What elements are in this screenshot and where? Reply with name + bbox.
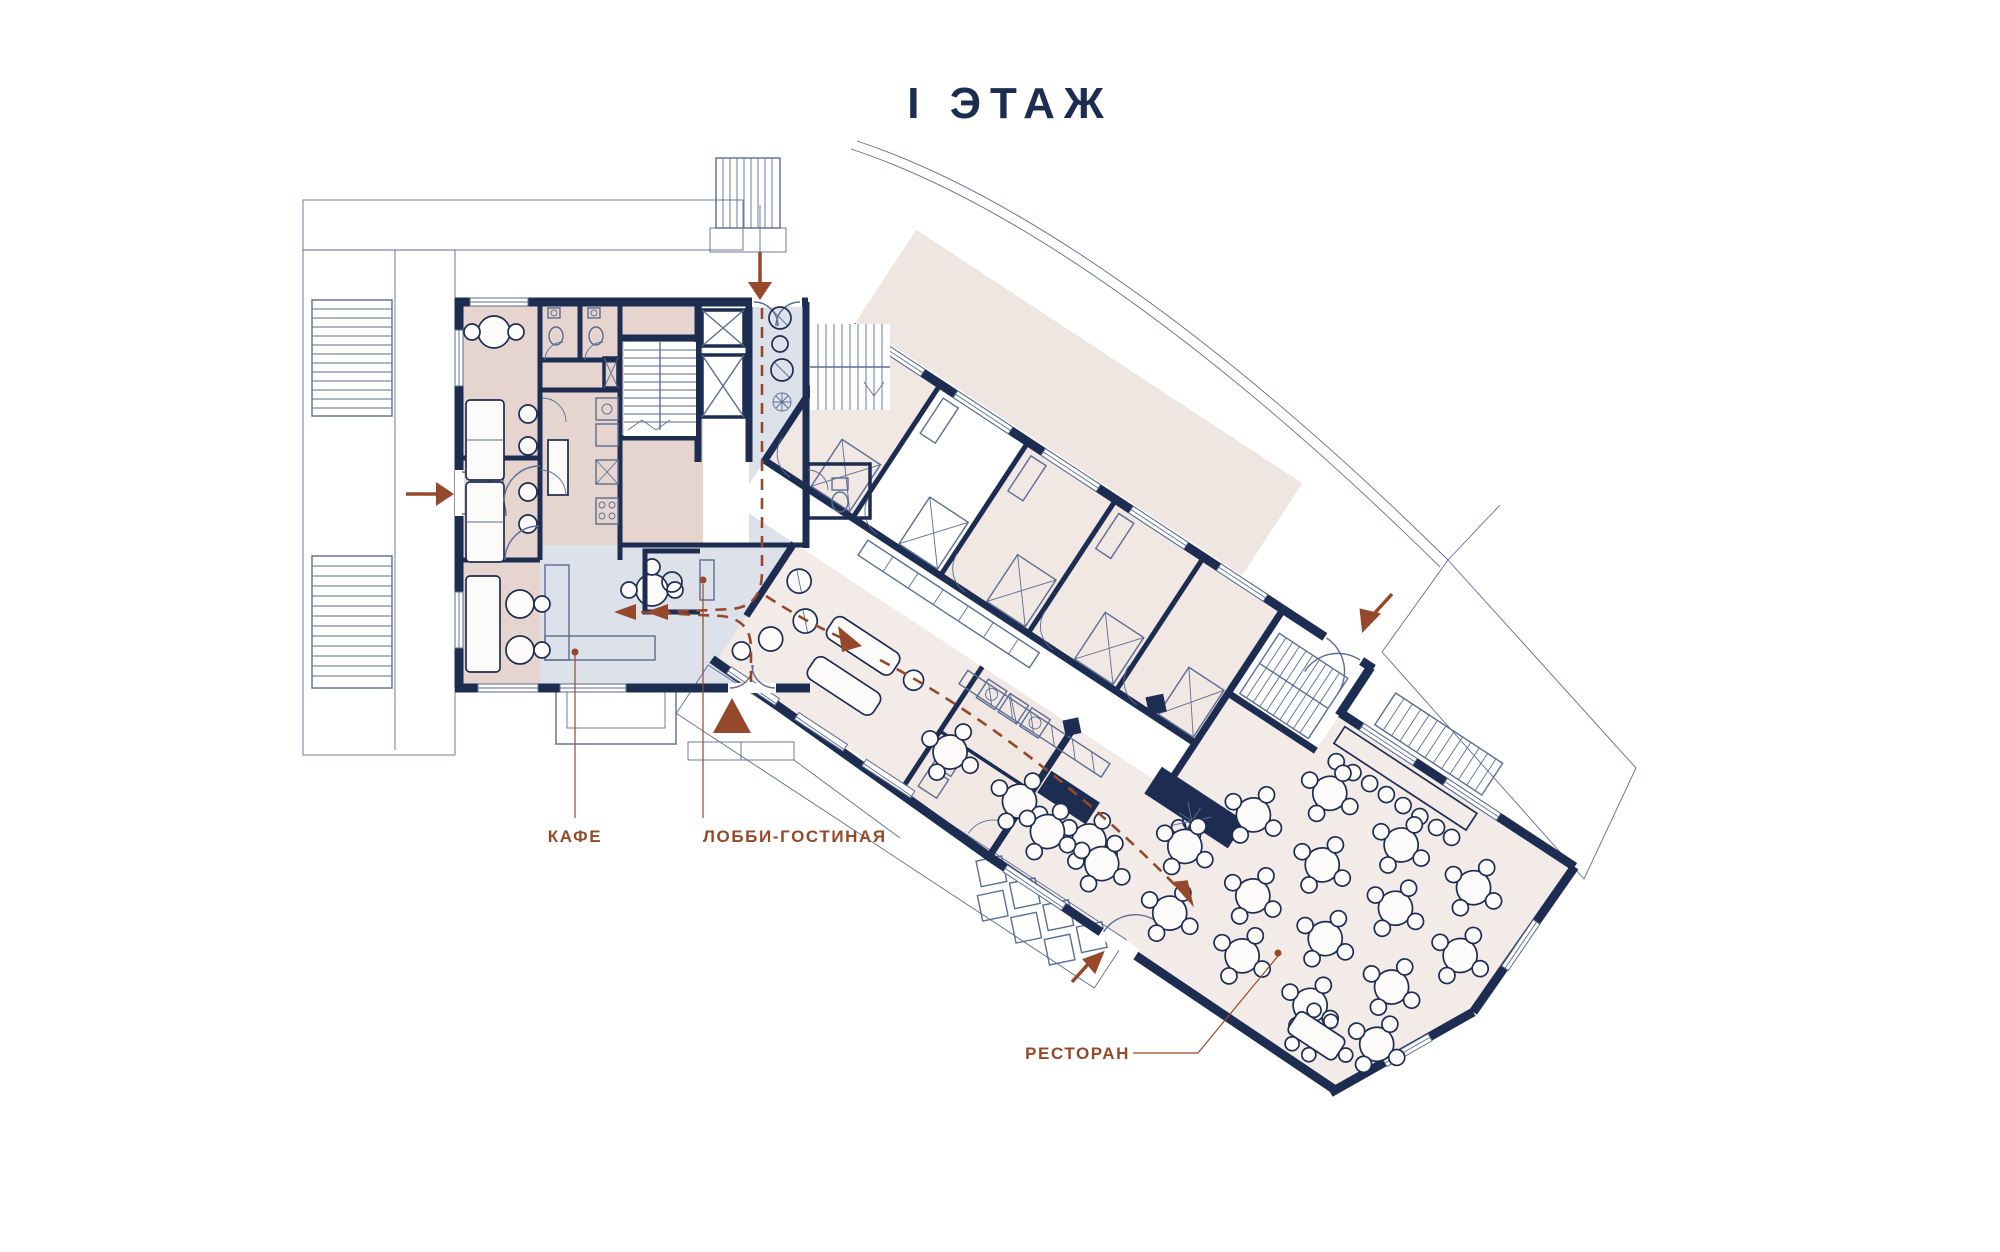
page-title: I ЭТАЖ (907, 79, 1112, 128)
entrance-arrow-top (748, 205, 772, 300)
entrance-arrow-ne (1356, 594, 1392, 635)
label-lobby-lounge: ЛОББИ-ГОСТИНАЯ (703, 827, 887, 846)
floor-plan-canvas: КАФЕ ЛОББИ-ГОСТИНАЯ РЕСТОРАН I ЭТАЖ (0, 0, 2000, 1252)
entrance-arrow-sw (1072, 949, 1105, 982)
exterior-stairs-left (312, 300, 392, 688)
entrance-arrow-left (406, 482, 454, 506)
stair-core (624, 342, 696, 436)
main-entrance-triangle (713, 698, 751, 733)
label-cafe: КАФЕ (548, 827, 602, 846)
exterior-stair-top (710, 158, 786, 252)
label-restaurant: РЕСТОРАН (1025, 1044, 1130, 1063)
stair-east (810, 324, 890, 410)
